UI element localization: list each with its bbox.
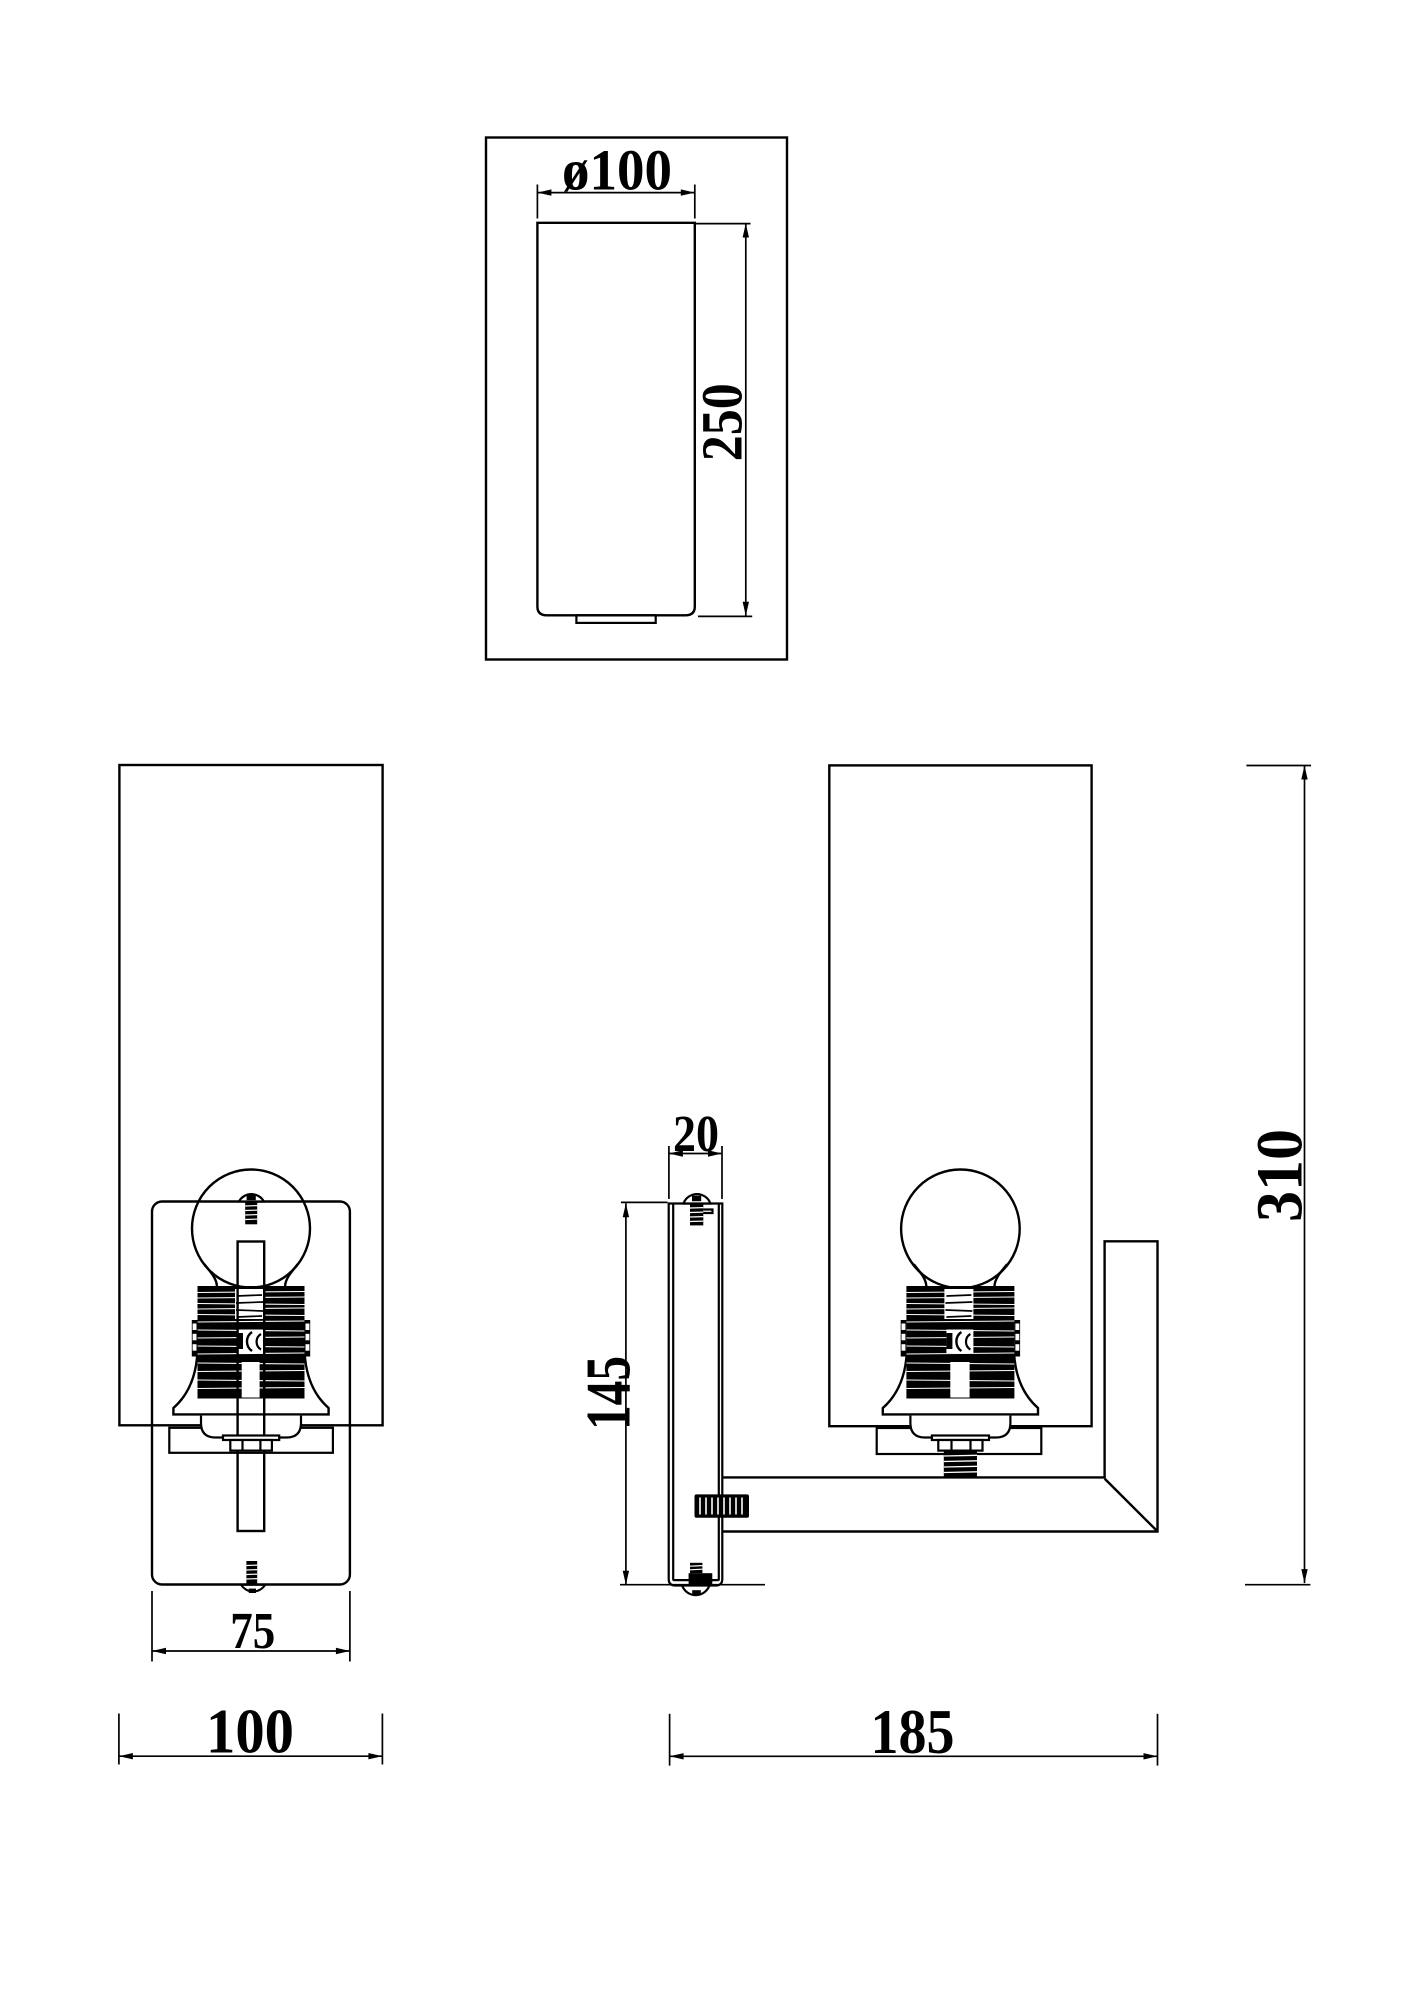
svg-text:250: 250 xyxy=(690,383,755,461)
svg-text:185: 185 xyxy=(871,1696,955,1767)
svg-text:20: 20 xyxy=(673,1106,719,1163)
svg-text:ø100: ø100 xyxy=(562,138,672,203)
svg-text:145: 145 xyxy=(573,1356,644,1430)
svg-text:100: 100 xyxy=(206,1695,294,1766)
svg-text:75: 75 xyxy=(230,1603,275,1660)
svg-text:310: 310 xyxy=(1244,1129,1317,1222)
